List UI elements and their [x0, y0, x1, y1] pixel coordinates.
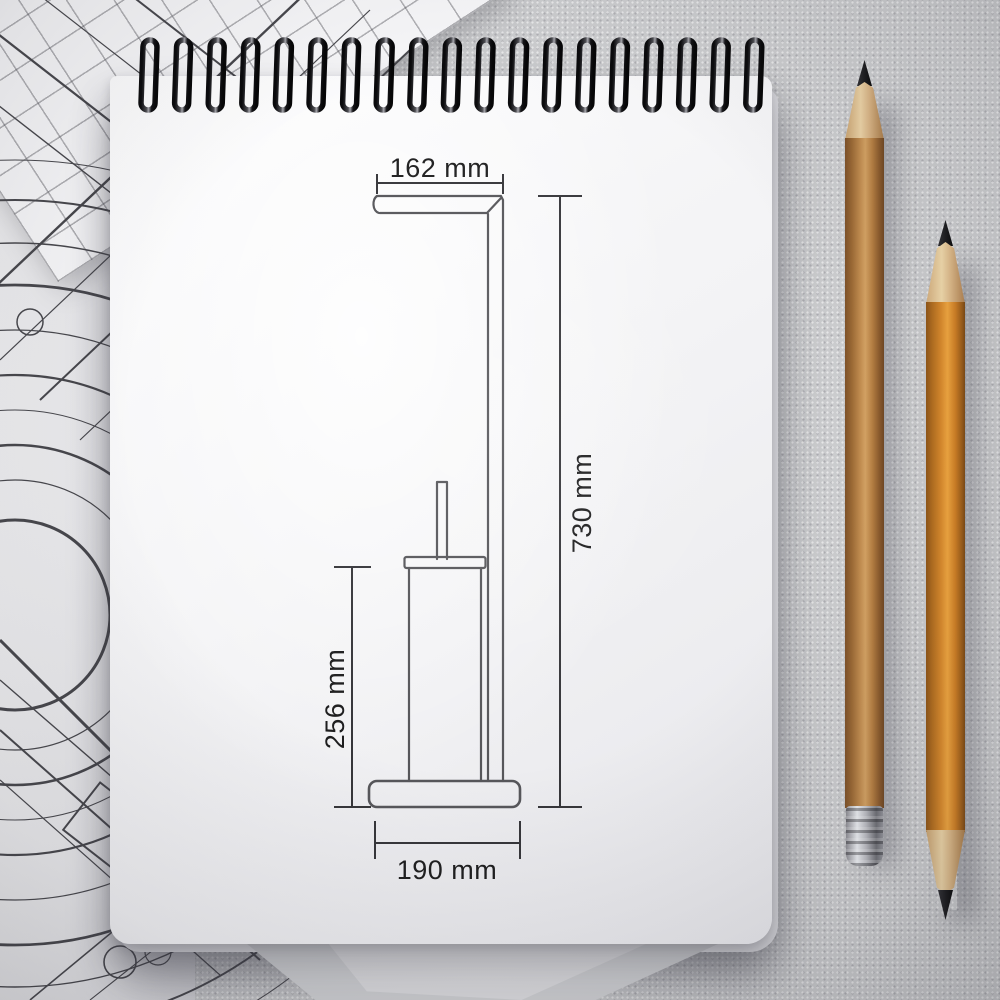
pencil-body	[926, 302, 965, 832]
notebook-page	[110, 76, 772, 944]
sharpened-wood-cone	[926, 242, 965, 304]
sharpened-wood-cone	[845, 82, 884, 140]
pencil-orange	[926, 220, 965, 920]
pencil-natural-wood	[845, 60, 884, 866]
scene: 162 mm 730 mm 256 mm 190 mm	[0, 0, 1000, 1000]
graphite-tip-bottom	[938, 890, 953, 920]
pencil-body	[845, 138, 884, 808]
sharpened-wood-cone-bottom	[926, 830, 965, 894]
metal-ferrule	[846, 806, 883, 866]
